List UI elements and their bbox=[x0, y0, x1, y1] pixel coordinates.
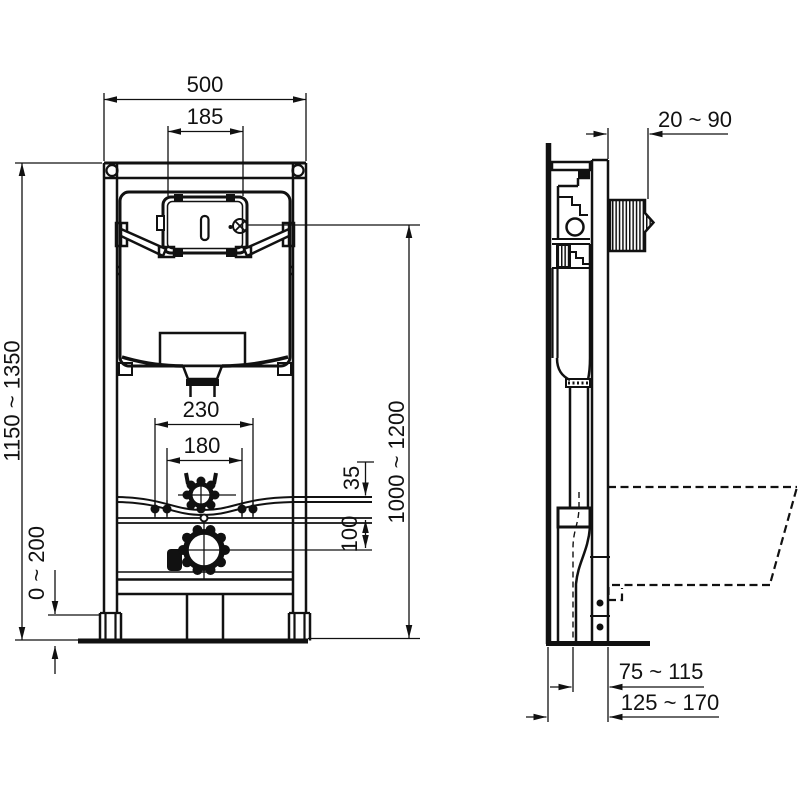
wc-pan-outline-dashed bbox=[608, 487, 797, 600]
dimensions: 500 185 1150 ~ 1350 0 ~ 200 230 180 35 1… bbox=[0, 72, 732, 722]
dim-height-range-label: 1150 ~ 1350 bbox=[0, 340, 25, 461]
adjustable-feet bbox=[100, 613, 310, 641]
side-view bbox=[546, 143, 797, 644]
dim-actuation-height-label: 1000 ~ 1200 bbox=[384, 401, 409, 524]
side-hatch-small bbox=[557, 245, 570, 267]
actuator-slot bbox=[201, 216, 209, 240]
flush-valve bbox=[183, 366, 222, 379]
dim-outlet-near-label: 75 ~ 115 bbox=[619, 659, 704, 684]
dim-outlet-far-label: 125 ~ 170 bbox=[621, 690, 719, 715]
dim-bolt-inner-label: 180 bbox=[184, 433, 221, 458]
dim-plate-depth-label: 20 ~ 90 bbox=[658, 107, 732, 132]
dim-inlet-offset-label: 35 bbox=[339, 466, 364, 490]
dim-opening-width-label: 185 bbox=[187, 104, 224, 129]
front-view bbox=[78, 163, 372, 641]
pan-fixing-bracket bbox=[558, 508, 590, 527]
installation-drawing: 500 185 1150 ~ 1350 0 ~ 200 230 180 35 1… bbox=[0, 0, 800, 800]
dim-frame-width-label: 500 bbox=[187, 72, 224, 97]
flush-plate-housing-hatched bbox=[610, 200, 654, 251]
dim-foot-range-label: 0 ~ 200 bbox=[24, 526, 49, 600]
dim-outlet-offset-label: 100 bbox=[337, 516, 362, 553]
technical-drawing-canvas: 500 185 1150 ~ 1350 0 ~ 200 230 180 35 1… bbox=[0, 0, 800, 800]
outlet-elbow bbox=[558, 492, 590, 643]
dim-bolt-outer-label: 230 bbox=[183, 397, 220, 422]
side-valve-circle bbox=[567, 219, 584, 236]
side-cistern-profile bbox=[552, 178, 592, 510]
